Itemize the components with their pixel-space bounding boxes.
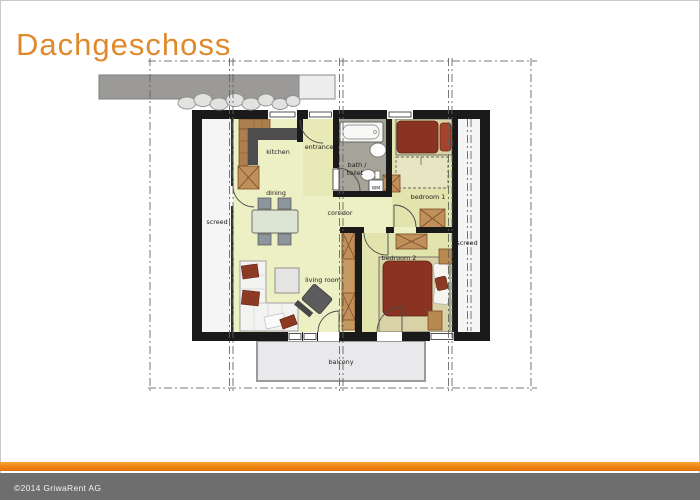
cabinet-x-bedroom2-top bbox=[396, 234, 427, 249]
red-pillow bbox=[241, 290, 259, 306]
floor-plan: kitchen entrance bath / toilet WM bedroo… bbox=[0, 0, 700, 460]
cabinet-bedroom2-corner bbox=[439, 249, 452, 264]
label-entrance: entrance bbox=[305, 143, 334, 151]
label-bath-line2: toilet bbox=[347, 169, 364, 177]
label-kitchen: kitchen bbox=[266, 148, 290, 156]
wall-screed-right bbox=[452, 119, 458, 332]
sink bbox=[370, 143, 386, 157]
bed2-cushion bbox=[435, 276, 448, 291]
wall-bath-bottom bbox=[333, 191, 391, 197]
red-pillow bbox=[241, 264, 259, 279]
cabinet-x-kitchen bbox=[238, 166, 259, 189]
cabinet-x-bedroom1 bbox=[420, 209, 445, 228]
label-balcony: balcony bbox=[328, 358, 353, 366]
bed1-pillow bbox=[440, 123, 451, 151]
label-bedroom2: bedroom 2 bbox=[382, 254, 417, 262]
wall-bath-right bbox=[386, 119, 392, 197]
label-screed-left: screed bbox=[206, 218, 227, 226]
label-dining: dining bbox=[266, 189, 286, 197]
bedroom1-furniture bbox=[396, 119, 452, 188]
room-screed-right bbox=[458, 119, 480, 332]
toilet-tank bbox=[375, 171, 380, 179]
window bbox=[310, 112, 332, 117]
label-washing-machine: WM bbox=[372, 186, 381, 192]
label-bedroom1: bedroom 1 bbox=[411, 193, 446, 201]
footer-copyright: ©2014 GriwaRent AG bbox=[14, 483, 101, 493]
window bbox=[270, 112, 295, 117]
label-bath-line1: bath / bbox=[348, 161, 368, 169]
label-screed-right: screed bbox=[456, 239, 477, 247]
coffee-table bbox=[275, 268, 299, 293]
label-corridor: corridor bbox=[328, 209, 353, 217]
cabinet-bedroom2-right bbox=[428, 311, 442, 330]
wall-bedroom2-left bbox=[355, 227, 362, 332]
bed1-duvet bbox=[397, 121, 438, 153]
window bbox=[289, 334, 301, 340]
bed1-dashed-spare-bed bbox=[396, 157, 448, 188]
cabinet-strip-hall bbox=[342, 231, 355, 330]
window bbox=[431, 334, 453, 340]
bath-door-leaf bbox=[333, 169, 339, 190]
window bbox=[389, 112, 411, 117]
footer-accent-bar bbox=[0, 462, 700, 471]
roof-band bbox=[99, 75, 335, 99]
footer-band: ©2014 GriwaRent AG bbox=[0, 473, 700, 500]
label-living-room: living room bbox=[305, 276, 341, 284]
window bbox=[304, 334, 316, 340]
dining-table bbox=[252, 210, 298, 233]
wall-bath-left bbox=[333, 119, 339, 168]
room-entrance bbox=[303, 119, 333, 196]
bed2-duvet bbox=[383, 261, 432, 316]
